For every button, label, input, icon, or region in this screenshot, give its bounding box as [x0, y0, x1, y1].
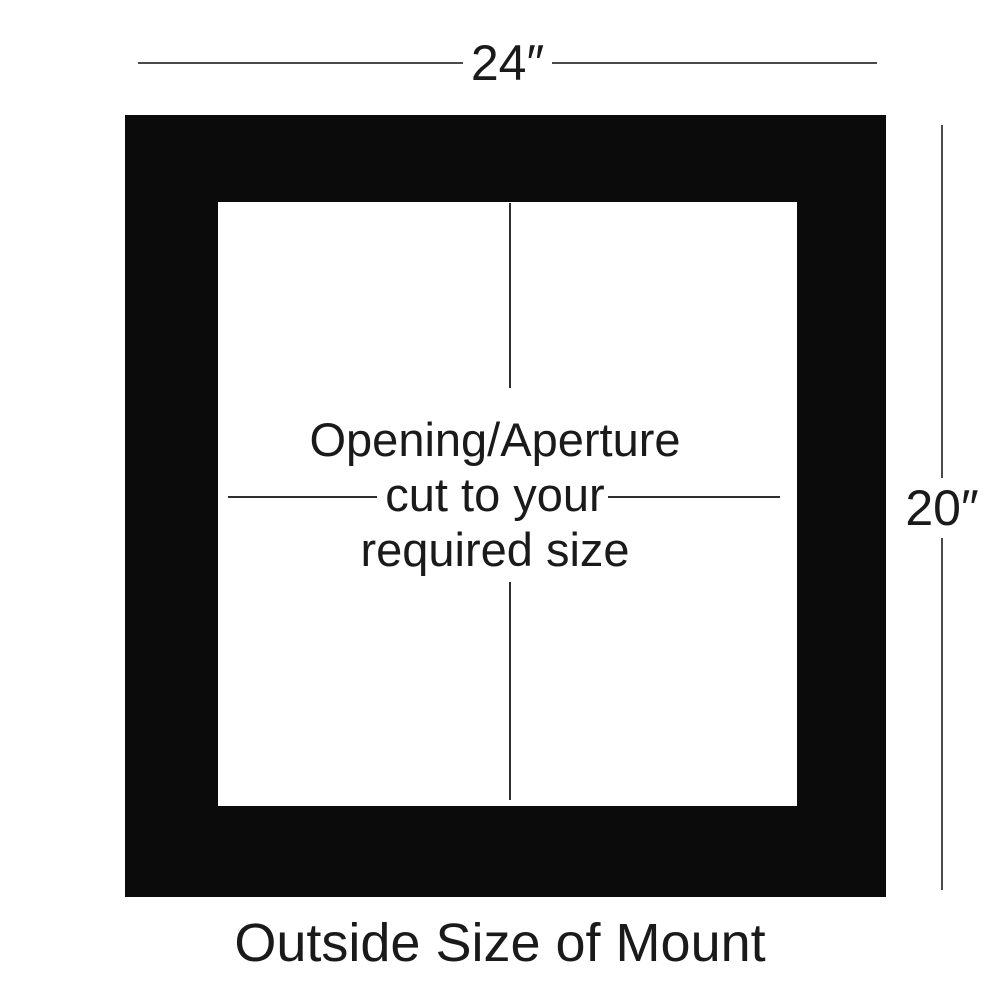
right-height-dimension-label: 20″ — [905, 478, 978, 538]
top-dimension-line-right — [552, 62, 877, 64]
top-dimension-line-left — [138, 62, 463, 64]
right-dimension-line-top — [941, 125, 943, 478]
top-width-dimension-label: 24″ — [463, 38, 552, 88]
aperture-annotation: Opening/Aperture cut to your required si… — [215, 412, 775, 577]
mount-size-diagram: 24″ 20″ Opening/Aperture cut to your req… — [0, 0, 1000, 1000]
right-height-dimension: 20″ — [902, 125, 982, 890]
aperture-vertical-centerline-bottom — [509, 582, 511, 800]
diagram-caption: Outside Size of Mount — [0, 913, 1000, 973]
aperture-annotation-line-2: cut to your — [215, 467, 775, 522]
aperture-annotation-line-1: Opening/Aperture — [215, 412, 775, 467]
aperture-annotation-line-3: required size — [215, 522, 775, 577]
right-dimension-line-bottom — [941, 538, 943, 891]
top-width-dimension: 24″ — [138, 39, 877, 87]
aperture-vertical-centerline-top — [509, 203, 511, 388]
